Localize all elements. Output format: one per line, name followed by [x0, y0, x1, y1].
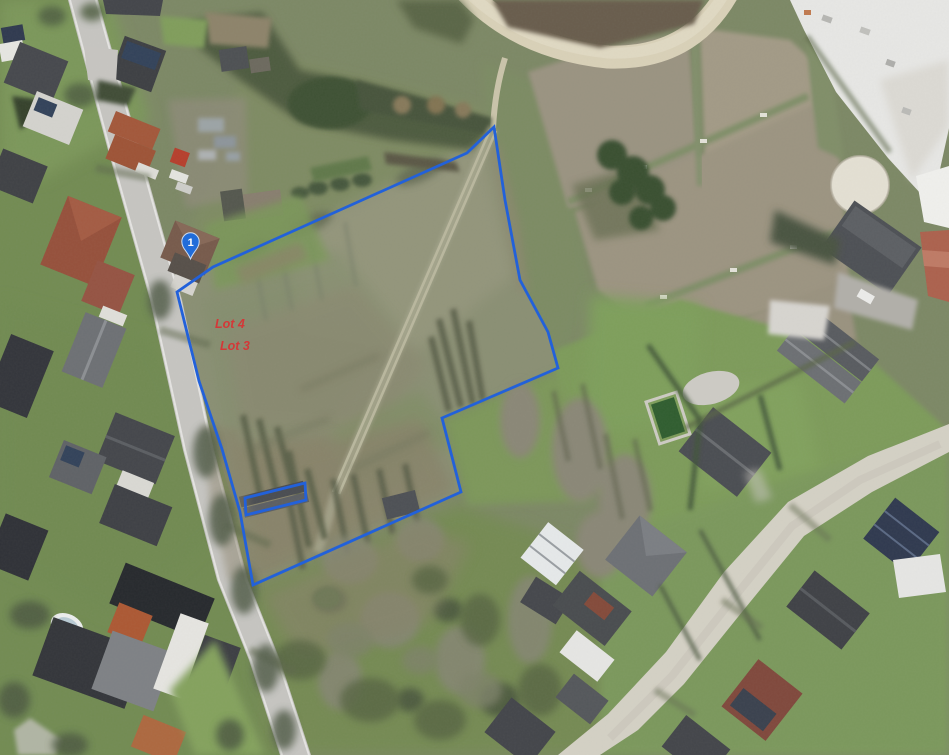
svg-text:Lot 3: Lot 3 [220, 339, 250, 353]
svg-text:Lot 4: Lot 4 [215, 317, 245, 331]
svg-text:1: 1 [188, 237, 194, 249]
